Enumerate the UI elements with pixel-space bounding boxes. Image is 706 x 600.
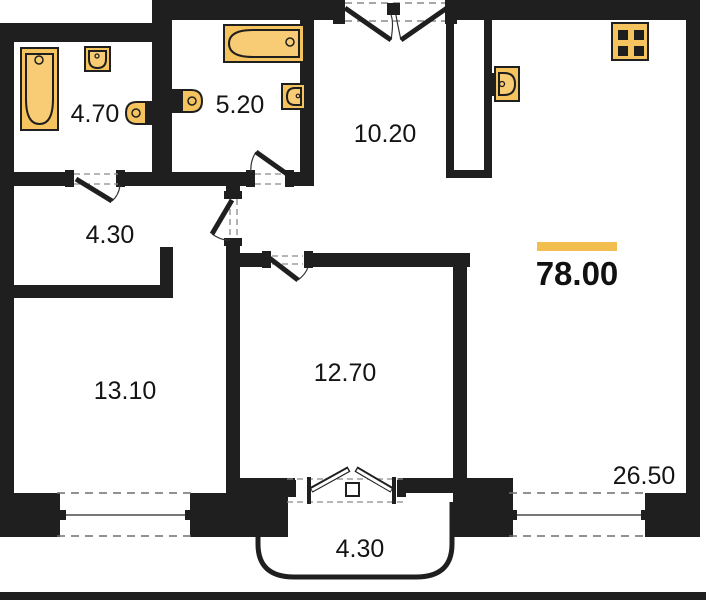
total-area-badge: 78.00 bbox=[536, 242, 619, 292]
wall bbox=[306, 253, 470, 267]
door-swing-arc bbox=[112, 185, 120, 201]
window-stop bbox=[508, 510, 517, 520]
wall bbox=[160, 247, 173, 285]
wall bbox=[445, 0, 700, 20]
duct-wall bbox=[446, 170, 492, 178]
door-jamb bbox=[224, 191, 242, 199]
wall bbox=[152, 0, 345, 20]
wall bbox=[121, 172, 250, 186]
door-jamb bbox=[333, 0, 345, 24]
walls bbox=[0, 0, 706, 600]
duct-wall bbox=[446, 20, 454, 178]
balcony-door-leaf-core bbox=[312, 470, 348, 490]
stove-icon bbox=[612, 23, 648, 60]
door-jamb bbox=[397, 480, 406, 497]
door-leaf bbox=[345, 8, 391, 40]
duct-wall bbox=[484, 20, 492, 178]
wall bbox=[226, 478, 295, 493]
window-living-room bbox=[508, 493, 650, 536]
door-leaf bbox=[256, 152, 287, 174]
floor-plan-svg: 4.70 5.20 10.20 4.30 13.10 12.70 26.50 4… bbox=[0, 0, 706, 600]
wall bbox=[398, 478, 467, 493]
wall bbox=[0, 493, 60, 537]
bathroom-2-door bbox=[251, 152, 287, 184]
door-jamb bbox=[445, 0, 457, 24]
bathroom-1-door bbox=[74, 174, 120, 201]
room-label-bathroom-2: 5.20 bbox=[216, 91, 265, 119]
total-area-bar bbox=[537, 242, 617, 251]
wall bbox=[0, 23, 172, 42]
bathtub-icon bbox=[21, 48, 58, 130]
window-stop bbox=[185, 510, 194, 520]
corridor-hall-door bbox=[212, 199, 237, 240]
door-swing-arc bbox=[251, 152, 256, 172]
room-label-balcony: 4.30 bbox=[336, 535, 385, 563]
room-label-room-1: 13.10 bbox=[94, 377, 157, 405]
room-label-bathroom-1: 4.70 bbox=[71, 100, 120, 128]
door-swing-arc bbox=[298, 267, 308, 280]
door-frame-post bbox=[392, 477, 396, 504]
door-jamb bbox=[65, 170, 74, 187]
door-jamb bbox=[246, 170, 255, 187]
wall bbox=[226, 240, 240, 493]
door-swing-arc bbox=[396, 15, 401, 40]
wall bbox=[190, 493, 288, 537]
door-leaf bbox=[401, 8, 447, 40]
total-area-value: 78.00 bbox=[536, 255, 619, 292]
room-label-room-2: 12.70 bbox=[314, 359, 377, 387]
window-stop bbox=[57, 510, 66, 520]
entrance-door bbox=[345, 3, 447, 40]
door-center-handle bbox=[346, 483, 359, 496]
toilet-icon bbox=[126, 101, 155, 125]
window-stop bbox=[641, 510, 650, 520]
door-leaf bbox=[212, 200, 232, 234]
sink-icon bbox=[85, 47, 110, 71]
floor-plan: 4.70 5.20 10.20 4.30 13.10 12.70 26.50 4… bbox=[0, 0, 706, 600]
door-jamb bbox=[224, 238, 242, 246]
room-label-living-room: 26.50 bbox=[613, 462, 676, 490]
door-swing-arc bbox=[391, 15, 393, 40]
toilet-icon bbox=[172, 89, 202, 113]
door-frame-post bbox=[307, 477, 311, 504]
bathtub-icon bbox=[224, 25, 304, 62]
door-leaf bbox=[268, 257, 298, 280]
wall bbox=[453, 267, 467, 478]
wall bbox=[0, 172, 67, 186]
door-jamb bbox=[304, 251, 313, 268]
room-label-hallway: 10.20 bbox=[354, 120, 417, 148]
wall bbox=[645, 493, 700, 537]
room-label-corridor: 4.30 bbox=[86, 221, 135, 249]
wall bbox=[686, 0, 700, 537]
door-leaf bbox=[76, 179, 112, 201]
door-jamb bbox=[287, 480, 296, 497]
door-center-post bbox=[387, 3, 400, 15]
balcony-door bbox=[287, 469, 406, 504]
sink-icon bbox=[282, 84, 305, 109]
room-2-door bbox=[268, 256, 308, 280]
wall bbox=[0, 592, 706, 600]
wall bbox=[240, 253, 265, 267]
window-room-1 bbox=[57, 493, 194, 536]
wall bbox=[0, 23, 14, 537]
balcony-door-leaf-core bbox=[357, 470, 391, 490]
wall bbox=[0, 285, 173, 298]
